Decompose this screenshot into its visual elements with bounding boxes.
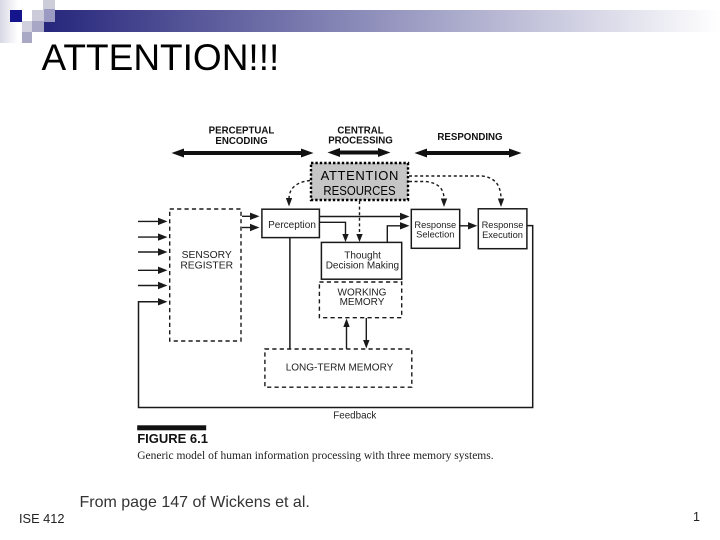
svg-text:FIGURE 6.1: FIGURE 6.1 — [137, 431, 208, 446]
svg-text:ATTENTION: ATTENTION — [321, 168, 399, 183]
svg-text:REGISTER: REGISTER — [180, 261, 233, 272]
svg-text:RESOURCES: RESOURCES — [323, 183, 395, 198]
svg-text:Response: Response — [414, 220, 456, 230]
svg-text:SENSORY: SENSORY — [182, 250, 232, 261]
svg-text:Feedback: Feedback — [333, 411, 376, 422]
svg-text:Perception: Perception — [268, 220, 316, 231]
svg-text:Selection: Selection — [416, 230, 454, 240]
svg-text:ENCODING: ENCODING — [215, 136, 267, 147]
svg-text:Generic model of human informa: Generic model of human information proce… — [137, 450, 494, 462]
svg-text:LONG-TERM MEMORY: LONG-TERM MEMORY — [286, 363, 394, 374]
svg-text:Response: Response — [482, 220, 524, 230]
svg-text:MEMORY: MEMORY — [340, 297, 385, 308]
svg-text:Execution: Execution — [482, 230, 523, 240]
svg-text:PROCESSING: PROCESSING — [328, 136, 393, 147]
svg-text:Decision Making: Decision Making — [326, 260, 399, 271]
svg-text:RESPONDING: RESPONDING — [437, 132, 502, 143]
